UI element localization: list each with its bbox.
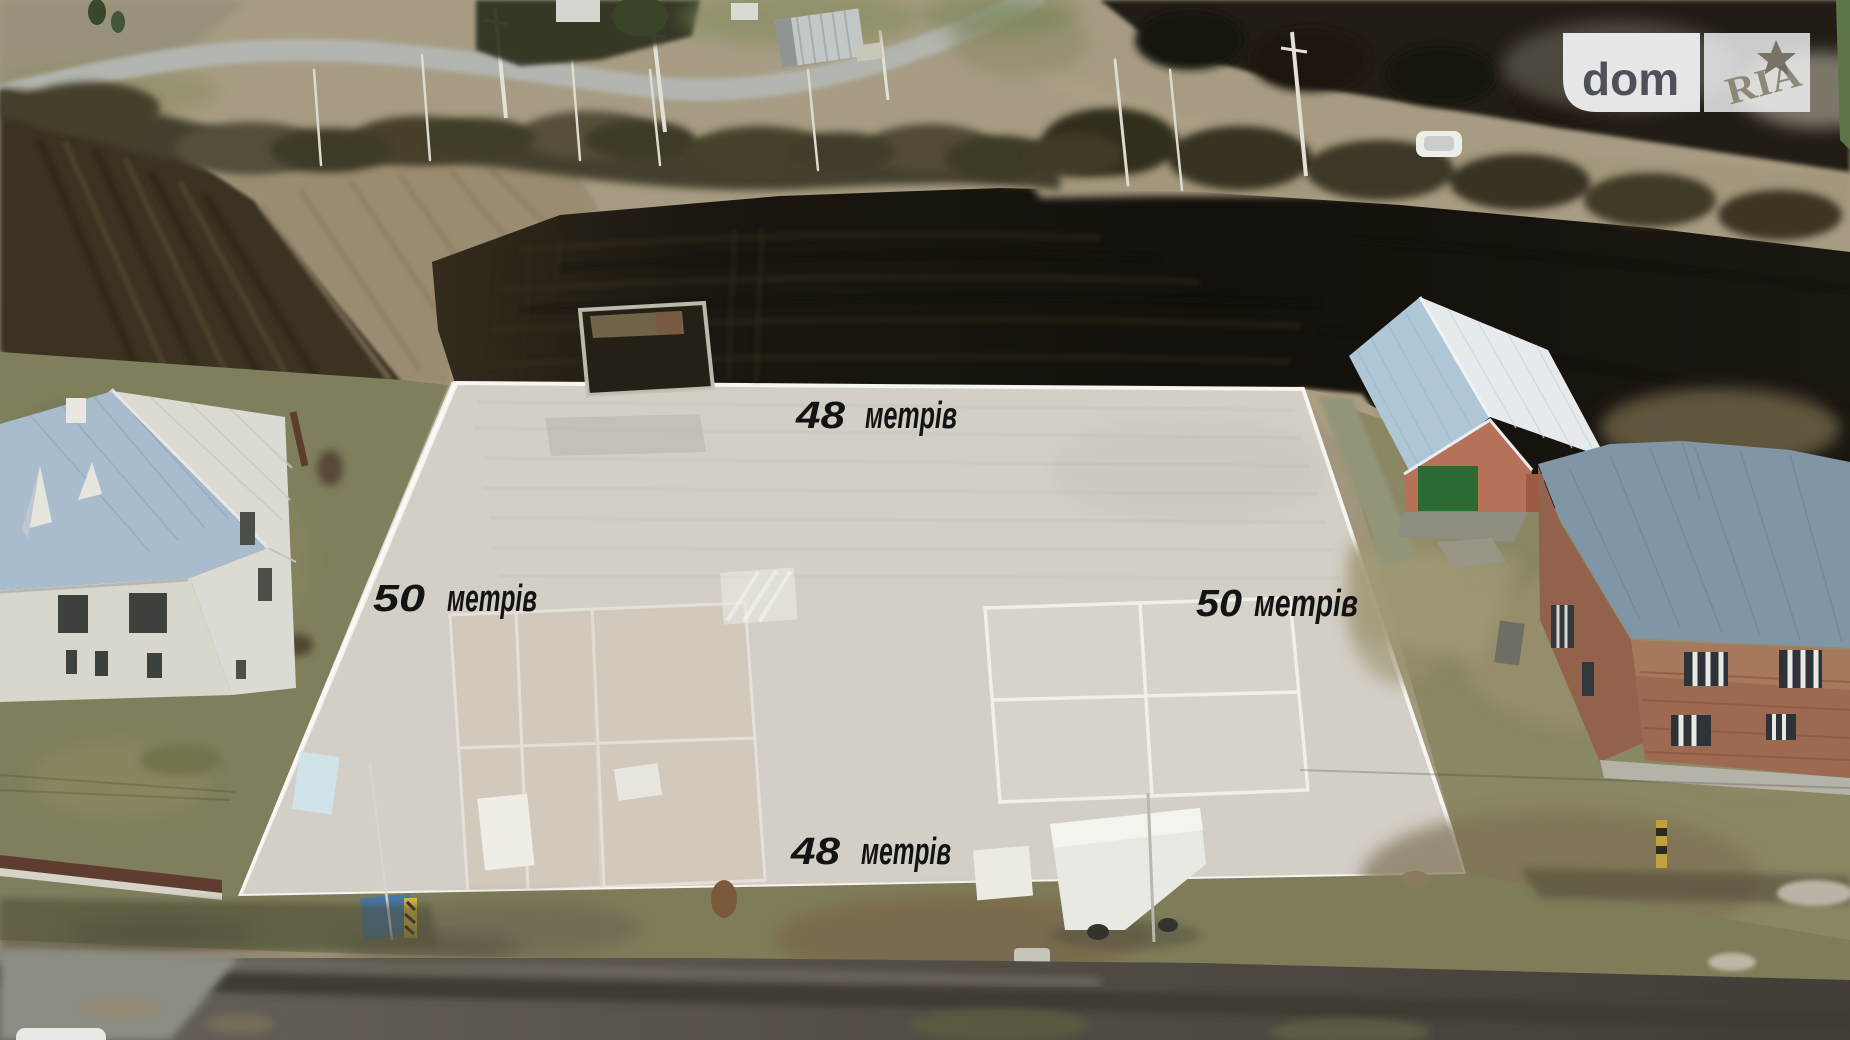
- svg-text:50метрів: 50метрів: [373, 578, 537, 620]
- svg-text:48метрів: 48метрів: [790, 831, 951, 873]
- svg-text:50метрів: 50метрів: [1196, 583, 1358, 625]
- svg-text:dom: dom: [1582, 53, 1679, 105]
- svg-text:48метрів: 48метрів: [795, 395, 957, 437]
